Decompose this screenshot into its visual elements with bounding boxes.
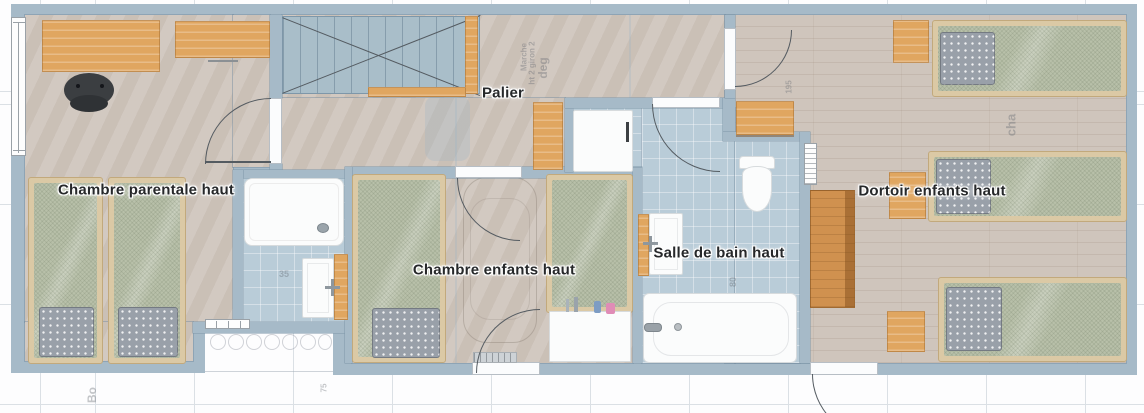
room-label-salle-de-bain: Salle de bain haut [653,245,784,262]
window [11,17,26,156]
pillow [946,287,1002,351]
window [205,319,250,329]
floor-plan-canvas: Marche ht 2 giron 2 deg 195 80 35 75 cha… [0,0,1144,413]
shelf [533,102,563,170]
underlay-line [205,371,333,372]
bathtub-faucet [644,323,662,332]
door-leaf [205,161,271,163]
staircase-landing-edge [368,87,466,97]
underlay-text: 195 [785,80,794,93]
wall-segment [233,170,352,178]
underlay-bathtub-ghost [425,96,470,161]
underlay-text: cha [1004,114,1019,136]
pillow [372,308,440,358]
pillow [118,307,178,357]
desk-handle [208,60,238,62]
underlay-circle [300,334,316,350]
toiletry-item [594,301,601,313]
toilet-bowl [742,166,772,212]
underlay-text: 80 [728,277,738,287]
vanity-shelf [638,214,649,276]
wardrobe [810,190,855,308]
underlay-circle [228,334,244,350]
bed [932,20,1127,97]
bed [546,174,633,313]
chair-bolt [100,84,104,88]
nightstand [887,311,925,352]
room-label-chambre-parentale: Chambre parentale haut [58,182,234,199]
staircase-landing-edge [465,16,478,94]
floor-palier [282,98,565,170]
underlay-text: deg [536,57,550,78]
pillow [940,32,995,85]
underlay-circle [282,334,298,350]
underlay-text: Bo [85,387,99,403]
room-label-palier: Palier [482,85,524,102]
washing-machine [573,110,633,172]
underlay-text: 35 [279,269,289,279]
room-label-chambre-enfants: Chambre enfants haut [413,262,575,279]
toiletry-item [566,299,569,312]
bed [108,177,186,364]
faucet-icon [649,236,652,252]
pillow [39,307,94,357]
wall-segment [270,15,282,98]
nightstand [893,20,929,63]
bed [28,177,103,364]
desk [175,21,270,58]
bathtub [643,293,797,363]
toiletry-item [574,297,578,312]
bed [938,277,1127,362]
wardrobe [736,101,794,135]
faucet-icon [331,279,334,296]
desk [42,20,160,72]
chair-bolt [76,84,80,88]
underlay-circle [210,334,226,350]
underlay-circle [318,334,332,350]
bathtub-drain [674,323,682,331]
toiletry-item [606,303,615,314]
door-swing [812,374,876,413]
underlay-text: 75 [320,384,329,393]
wall-segment [233,170,243,330]
door-opening [455,166,522,178]
shower-drain [317,223,329,233]
underlay-circle [264,334,280,350]
office-chair-base [70,95,108,112]
dresser [549,311,631,362]
room-label-dortoir: Dortoir enfants haut [858,183,1005,200]
wall-segment [565,98,573,172]
shower-tray [244,178,344,246]
underlay-circle [246,334,262,350]
radiator [804,143,817,185]
underlay-grid-line [629,15,631,98]
